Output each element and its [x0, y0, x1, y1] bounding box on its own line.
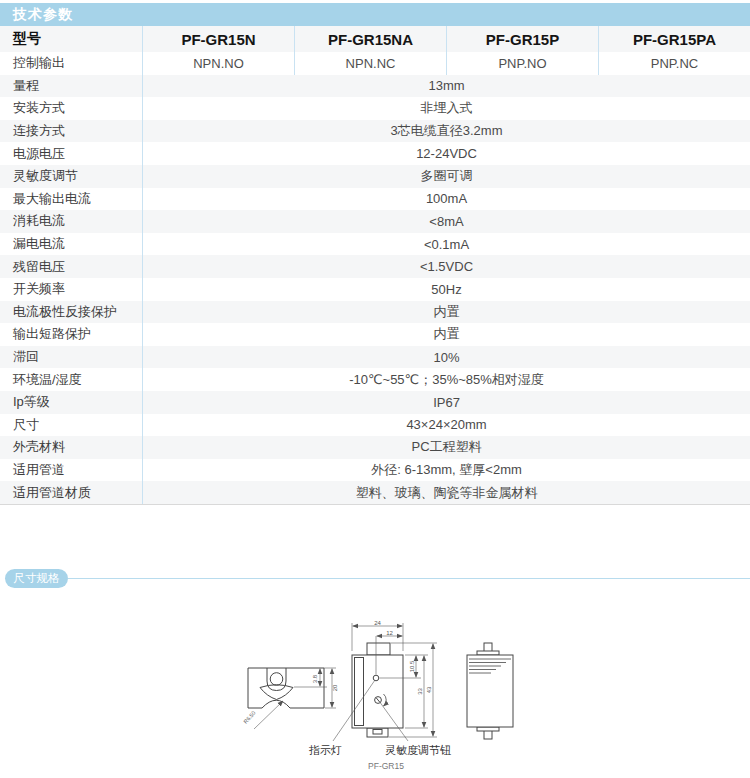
spec-row: 开关频率50Hz — [0, 278, 750, 301]
dim-saddle-radius: R6.50 — [242, 710, 256, 725]
dimension-drawing: 3.8 20 R6.50 — [230, 618, 530, 773]
sensitivity-knob-label: 灵敏度调节钮 — [385, 744, 451, 756]
spec-value: -10℃~55℃；35%~85%相对湿度 — [143, 368, 750, 391]
spec-value: 塑料、玻璃、陶瓷等非金属材料 — [143, 481, 750, 504]
spec-row: 残留电压<1.5VDC — [0, 255, 750, 278]
spec-row: 尺寸43×24×20mm — [0, 414, 750, 437]
spec-label: 漏电电流 — [0, 233, 143, 256]
dim-body-height: 33 — [417, 688, 423, 695]
spec-label: 最大输出电流 — [0, 188, 143, 211]
spec-row: Ip等级IP67 — [0, 391, 750, 414]
spec-value: 内置 — [143, 323, 750, 346]
spec-row: 安装方式非埋入式 — [0, 97, 750, 120]
spec-value: 100mA — [143, 188, 750, 211]
dim-overall-width: 24 — [374, 620, 381, 626]
model-name: PF-GR15N — [143, 26, 295, 52]
spec-label: 控制输出 — [0, 52, 143, 75]
dim-led-offset: 10.5 — [409, 660, 415, 672]
tech-params-banner: 技术参数 — [0, 3, 750, 26]
spec-label: 外壳材料 — [0, 436, 143, 459]
spec-label: 环境温/湿度 — [0, 368, 143, 391]
spec-value: <8mA — [143, 210, 750, 233]
spec-row: 适用管道外径: 6-13mm, 壁厚<2mm — [0, 459, 750, 482]
clamp-side-view — [248, 668, 324, 708]
spec-row-control-output: 控制输出 NPN.NO NPN.NC PNP.NO PNP.NC — [0, 52, 750, 75]
spec-row: 外壳材料PC工程塑料 — [0, 436, 750, 459]
spec-label: 开关频率 — [0, 278, 143, 301]
spec-value: 内置 — [143, 301, 750, 324]
dimensions-section-title: 尺寸规格 — [14, 571, 60, 586]
spec-label: 连接方式 — [0, 120, 143, 143]
spec-label: 适用管道 — [0, 459, 143, 482]
spec-value: 非埋入式 — [143, 97, 750, 120]
spec-value: 10% — [143, 346, 750, 369]
spec-label: 安装方式 — [0, 97, 143, 120]
spec-value: 3芯电缆直径3.2mm — [143, 120, 750, 143]
spec-value: NPN.NC — [295, 52, 447, 75]
spec-row: 最大输出电流100mA — [0, 188, 750, 211]
spec-value: 50Hz — [143, 278, 750, 301]
spec-value: PC工程塑料 — [143, 436, 750, 459]
spec-value: IP67 — [143, 391, 750, 414]
spec-table: 型号 PF-GR15N PF-GR15NA PF-GR15P PF-GR15PA… — [0, 26, 750, 505]
spec-value: 13mm — [143, 75, 750, 98]
spec-row: 电流极性反接保护内置 — [0, 301, 750, 324]
spec-label: 残留电压 — [0, 255, 143, 278]
model-name: PF-GR15PA — [599, 26, 750, 52]
spec-header-row: 型号 PF-GR15N PF-GR15NA PF-GR15P PF-GR15PA — [0, 26, 750, 52]
spec-label: 适用管道材质 — [0, 481, 143, 504]
spec-value: 多圈可调 — [143, 165, 750, 188]
spec-row: 适用管道材质塑料、玻璃、陶瓷等非金属材料 — [0, 481, 750, 504]
spec-row: 电源电压12-24VDC — [0, 142, 750, 165]
dimensions-section-badge: 尺寸规格 — [5, 569, 68, 588]
spec-value: <0.1mA — [143, 233, 750, 256]
drawing-caption: PF-GR15 — [368, 761, 404, 771]
tech-params-title: 技术参数 — [0, 6, 73, 24]
model-name: PF-GR15NA — [295, 26, 447, 52]
spec-row: 输出短路保护内置 — [0, 323, 750, 346]
spec-value: 12-24VDC — [143, 142, 750, 165]
spec-label: 灵敏度调节 — [0, 165, 143, 188]
dim-slot-depth: 3.8 — [312, 674, 318, 683]
model-name: PF-GR15P — [447, 26, 599, 52]
spec-value: <1.5VDC — [143, 255, 750, 278]
dim-center-offset: 12 — [386, 630, 393, 636]
spec-value: PNP.NC — [599, 52, 750, 75]
spec-value: PNP.NO — [447, 52, 599, 75]
spec-label: 尺寸 — [0, 414, 143, 437]
spec-label: 电流极性反接保护 — [0, 301, 143, 324]
dim-overall-height: 43 — [426, 686, 432, 693]
spec-label: 电源电压 — [0, 142, 143, 165]
spec-row: 漏电电流<0.1mA — [0, 233, 750, 256]
spec-row: 量程13mm — [0, 75, 750, 98]
spec-label: Ip等级 — [0, 391, 143, 414]
spec-value: NPN.NO — [143, 52, 295, 75]
spec-label: 量程 — [0, 75, 143, 98]
indicator-light-label: 指示灯 — [308, 744, 342, 756]
spec-label: 消耗电流 — [0, 210, 143, 233]
datasheet-page: 技术参数 型号 PF-GR15N PF-GR15NA PF-GR15P PF-G… — [0, 0, 750, 778]
side-view — [467, 643, 513, 739]
spec-label: 滞回 — [0, 346, 143, 369]
spec-row: 连接方式3芯电缆直径3.2mm — [0, 120, 750, 143]
spec-label: 输出短路保护 — [0, 323, 143, 346]
spec-row: 环境温/湿度-10℃~55℃；35%~85%相对湿度 — [0, 368, 750, 391]
spec-value: 外径: 6-13mm, 壁厚<2mm — [143, 459, 750, 482]
section-divider-line — [68, 578, 750, 579]
front-view — [352, 643, 403, 737]
dim-clamp-height: 20 — [332, 684, 338, 691]
spec-value: 43×24×20mm — [143, 414, 750, 437]
model-column-header: 型号 — [0, 26, 143, 52]
spec-row: 滞回10% — [0, 346, 750, 369]
spec-row: 灵敏度调节多圈可调 — [0, 165, 750, 188]
spec-row: 消耗电流<8mA — [0, 210, 750, 233]
